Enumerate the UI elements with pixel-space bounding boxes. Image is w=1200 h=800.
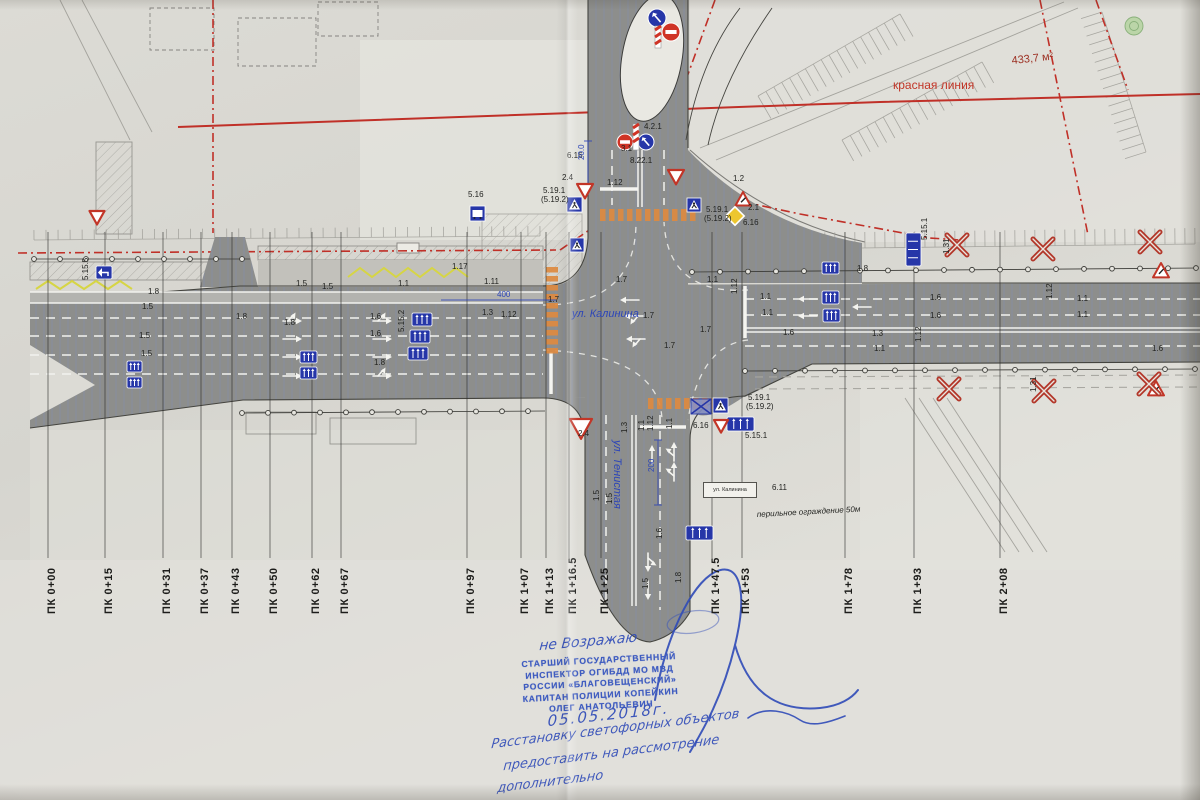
marking-label: 5.16 [468, 190, 484, 199]
lane-direction-sign-icon [300, 367, 317, 379]
marking-label: 1.1 [760, 292, 772, 301]
marking-label: 1.8 [236, 312, 248, 321]
mandatory-direction-sign-icon [638, 134, 654, 150]
marking-label: 1.6 [370, 329, 382, 338]
marking-label: 8.22.1 [630, 156, 653, 165]
plan-photo: 1.81.51.51.51.81.51.51.11.171.111.61.61.… [0, 0, 1200, 800]
marking-label: 1.1 [707, 275, 719, 284]
marking-label: 1.1 [637, 419, 646, 431]
lane-direction-sign-icon [906, 233, 921, 266]
marking-label: 3.1 [621, 144, 633, 153]
marking-label: 1.8 [857, 264, 869, 273]
station-label: ПК 0+43 [230, 567, 242, 614]
lane-direction-sign-icon [300, 351, 317, 363]
marking-label: 1.5 [139, 331, 151, 340]
street-name-plate: ул. Калинина [703, 482, 757, 498]
marking-label: 1.8 [284, 318, 296, 327]
marking-label: 1.8 [674, 571, 683, 583]
pedestrian-crossing-sign-icon [713, 398, 728, 413]
marking-label: 1.31 [942, 238, 951, 254]
marking-label: ул. Тенистая [611, 439, 623, 509]
marking-label: 1.12 [914, 326, 923, 342]
marking-label: 1.8 [374, 358, 386, 367]
station-label: ПК 0+97 [465, 567, 477, 614]
marking-label: 1.1 [665, 417, 674, 429]
marking-label: 1.1 [1077, 294, 1089, 303]
lane-direction-sign-icon [822, 291, 839, 304]
marking-label: (5.19.2) [541, 195, 569, 204]
marking-label: 1.7 [548, 295, 560, 304]
station-label: ПК 1+13 [544, 567, 556, 614]
marking-label: 1.17 [452, 262, 468, 271]
marking-label: 4.2.1 [644, 122, 662, 131]
marking-label: 1.6 [655, 527, 664, 539]
marking-label: 5.15.1 [745, 431, 768, 440]
marking-label: 1.3 [872, 329, 884, 338]
marking-label: 5.19.1 [543, 186, 566, 195]
striped-marker-post-icon [655, 26, 661, 48]
give-way-sign-icon [714, 420, 728, 433]
lane-direction-sign-icon [686, 526, 713, 540]
marking-label: 1.7 [664, 341, 676, 350]
station-label: ПК 0+15 [103, 567, 115, 614]
marking-label: 1.12 [730, 278, 739, 294]
pedestrian-crossing-sign-icon [570, 238, 584, 252]
bus-stop-sign-icon [470, 206, 485, 221]
lane-direction-sign-icon [127, 377, 142, 388]
marking-label: 5.15.5 [81, 257, 90, 280]
marking-label: 5.15.1 [920, 217, 929, 240]
marking-label: 1.6 [930, 311, 942, 320]
striped-marker-post-icon [633, 124, 639, 150]
station-label: ПК 0+67 [339, 567, 351, 614]
marking-label: 1.5 [592, 489, 601, 501]
crossed-out-sign-icon [691, 399, 711, 414]
station-label: ПК 0+00 [46, 567, 58, 614]
marking-label: 1.6 [1152, 344, 1164, 353]
marking-label: 1.7 [616, 275, 628, 284]
station-label: ПК 1+25 [599, 567, 611, 614]
station-label: ПК 1+78 [843, 567, 855, 614]
station-label: ПК 2+08 [998, 567, 1010, 614]
marking-label: 1.5 [296, 279, 308, 288]
lane-direction-sign-icon [412, 313, 432, 326]
marking-label: 1.11 [484, 277, 500, 286]
marking-label: 1.12 [501, 310, 517, 319]
marking-label: 1.6 [783, 328, 795, 337]
no-entry-sign-icon [662, 23, 680, 41]
station-label: ПК 1+16.5 [567, 557, 579, 614]
station-label: ПК 0+62 [310, 567, 322, 614]
marking-label: 5.15.2 [397, 309, 406, 332]
marking-label: 1.7 [643, 311, 655, 320]
marking-label: 1.5 [641, 577, 650, 589]
marking-label: 1.2 [733, 174, 745, 183]
station-label: ПК 1+47.5 [710, 557, 722, 614]
lane-direction-sign-icon [823, 309, 840, 322]
marking-label: 1.5 [142, 302, 154, 311]
lane-direction-sign-icon [408, 347, 428, 360]
station-label: ПК 0+50 [268, 567, 280, 614]
marking-label: 2.4 [562, 173, 574, 182]
marking-label: 1.1 [874, 344, 886, 353]
station-label: ПК 1+53 [740, 567, 752, 614]
marking-label: 1.1 [1077, 310, 1089, 319]
lane-direction-sign-icon [822, 262, 839, 274]
pedestrian-crossing-sign-icon [687, 198, 701, 212]
lane-direction-sign-icon [127, 361, 142, 372]
mandatory-direction-sign-icon [648, 9, 666, 27]
marking-label: 200 [647, 458, 656, 472]
station-label: ПК 1+07 [519, 567, 531, 614]
marking-label: 1.6 [930, 293, 942, 302]
lane-end-sign-icon [96, 266, 112, 279]
station-label: ПК 1+93 [912, 567, 924, 614]
marking-label: 20.0 [577, 144, 586, 160]
marking-label: 1.3 [482, 308, 494, 317]
marking-label: 1.3 [620, 421, 629, 433]
marking-label: 1.5 [141, 349, 153, 358]
station-label: ПК 0+37 [199, 567, 211, 614]
marking-label: 6.11 [772, 483, 788, 492]
marking-label: 2.4 [578, 429, 590, 438]
marking-label: 1.12 [607, 178, 623, 187]
lane-direction-sign-icon [410, 330, 430, 343]
marking-label: 1.7 [700, 325, 712, 334]
marking-label: 1.6 [370, 312, 382, 321]
marking-label: 1.1 [762, 308, 774, 317]
marking-label: (5.19.2) [746, 402, 774, 411]
marking-label: 1.31 [1029, 376, 1038, 392]
marking-label: ул. Калинина [571, 308, 639, 320]
marking-label: 1.5 [322, 282, 334, 291]
marking-label: 1.12 [1045, 283, 1054, 299]
marking-label: 2.1 [748, 203, 760, 212]
marking-label: красная линия [893, 78, 974, 92]
marking-label: 5.19.1 [706, 205, 729, 214]
marking-label: 6.16 [743, 218, 759, 227]
pedestrian-crossing-sign-icon [567, 197, 582, 212]
marking-label: 5.19.1 [748, 393, 771, 402]
marking-label: 400 [497, 290, 511, 299]
marking-label: 1.1 [398, 279, 410, 288]
marking-label: 1.8 [148, 287, 160, 296]
station-label: ПК 0+31 [161, 567, 173, 614]
marking-label: 6.16 [693, 421, 709, 430]
marking-label: (5.19.2) [704, 214, 732, 223]
lane-direction-sign-icon [727, 417, 754, 431]
marking-label: 1.12 [646, 415, 655, 431]
